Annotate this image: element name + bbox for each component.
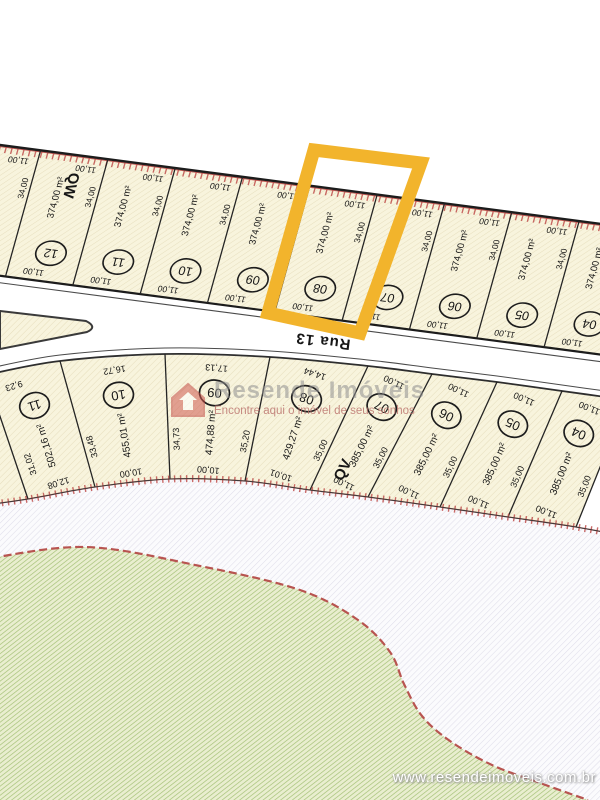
street-island — [0, 311, 92, 349]
lot-number: 10 — [110, 387, 127, 404]
lot-front-bottom-label: 10,00 — [197, 464, 220, 476]
lot-front-top-label: 17,13 — [205, 362, 228, 374]
footer-url: www.resendeimoveis.com.br — [393, 769, 596, 786]
lot-number: 09 — [207, 385, 223, 401]
site-plan: 11,00374,00 m²34,001311,0011,00374,00 m²… — [0, 0, 600, 800]
lot-map-image: 11,00374,00 m²34,001311,0011,00374,00 m²… — [0, 0, 600, 800]
